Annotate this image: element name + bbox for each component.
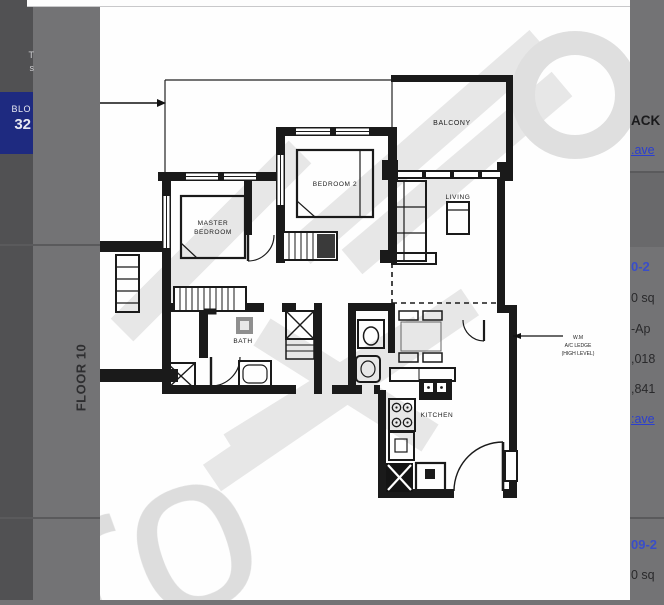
svg-text:BEDROOM: BEDROOM <box>194 229 232 236</box>
svg-text:W.M: W.M <box>573 335 583 341</box>
svg-text:MASTER: MASTER <box>198 220 229 227</box>
floorplan-image: ro sale unit <box>100 7 630 600</box>
block-badge[interactable]: BLO 32 <box>0 92 33 154</box>
left-page-column <box>33 0 100 600</box>
right-row-shade <box>630 173 664 247</box>
floor-label: FLOOR 10 <box>74 328 89 428</box>
unit-number-fragment[interactable]: 09-2 <box>631 537 657 552</box>
floorplan-drawing: ro sale unit <box>100 7 630 600</box>
floorplan-viewer: { "left_panel": { "clipped_text_top_1": … <box>0 0 664 600</box>
svg-text:BEDROOM 2: BEDROOM 2 <box>313 181 357 188</box>
block-badge-label: BLO <box>0 104 31 114</box>
area-fragment: 0 sq <box>631 568 655 582</box>
top-bar <box>27 0 630 7</box>
svg-text:BATH: BATH <box>233 338 252 345</box>
area-fragment: 0 sq <box>631 291 655 305</box>
price-fragment: ,018 <box>631 352 655 366</box>
left-row-divider <box>0 517 100 519</box>
svg-text:(HIGH LEVEL): (HIGH LEVEL) <box>562 351 595 357</box>
date-fragment: -Ap <box>631 322 650 336</box>
right-row-divider <box>630 517 664 519</box>
svg-text:A/C LEDGE: A/C LEDGE <box>565 343 592 349</box>
unit-pointer: sale unit <box>100 80 392 172</box>
side-annotation: W.M A/C LEDGE (HIGH LEVEL) <box>513 333 595 357</box>
svg-text:LIVING: LIVING <box>446 194 471 201</box>
block-badge-number: 32 <box>0 116 31 133</box>
svg-text:BALCONY: BALCONY <box>433 120 471 127</box>
price-fragment: ,841 <box>631 382 655 396</box>
clipped-text: T <box>24 50 34 60</box>
svg-text:KITCHEN: KITCHEN <box>421 412 454 419</box>
caveat-link-fragment[interactable]: :ave <box>631 412 655 426</box>
left-row-divider <box>0 244 100 246</box>
clipped-text: s <box>24 63 34 73</box>
unit-number-fragment[interactable]: 0-2 <box>631 259 650 274</box>
left-page-edge <box>0 0 33 600</box>
column-header-fragment: ACK <box>631 113 660 128</box>
caveat-link-fragment[interactable]: .ave <box>631 143 655 157</box>
